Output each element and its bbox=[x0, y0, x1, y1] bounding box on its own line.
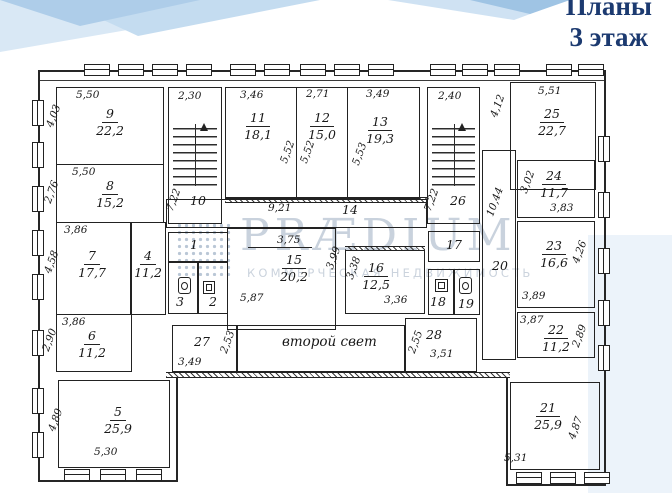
window-mark bbox=[264, 64, 290, 76]
room-16-width-dim: 3,36 bbox=[384, 294, 407, 306]
wall bbox=[176, 377, 178, 481]
sink-icon bbox=[435, 279, 448, 292]
window-mark bbox=[494, 64, 520, 76]
second-light-label: второй свет bbox=[282, 334, 377, 350]
page-title: Планы 3 этаж bbox=[566, 0, 652, 53]
toilet-icon bbox=[178, 277, 191, 294]
room-25-height-dim: 4,12 bbox=[488, 93, 507, 119]
room-13-width-dim: 3,49 bbox=[366, 88, 389, 100]
window-mark bbox=[230, 64, 256, 76]
window-mark bbox=[32, 142, 44, 168]
staircase-10-width-dim: 2,30 bbox=[178, 90, 201, 102]
sink-icon bbox=[203, 281, 215, 294]
room-15-area: 20,2 bbox=[266, 269, 322, 285]
room-24-width-dim: 3,83 bbox=[550, 202, 573, 214]
room-25-label: 2522,7 bbox=[524, 106, 580, 140]
room-4-number: 4 bbox=[140, 248, 156, 265]
room-7-width-dim: 3,86 bbox=[64, 224, 87, 236]
room-22-number: 22 bbox=[544, 322, 568, 339]
window-mark bbox=[32, 274, 44, 300]
measure-line bbox=[248, 247, 312, 248]
room-2-number: 2 bbox=[209, 294, 217, 309]
window-mark bbox=[598, 192, 610, 218]
title-line-1: Планы bbox=[566, 0, 652, 22]
corridor-20-number: 20 bbox=[492, 258, 508, 273]
room-3-number: 3 bbox=[176, 294, 184, 309]
room-7-label: 717,7 bbox=[64, 248, 120, 282]
room-17-number: 17 bbox=[446, 237, 462, 252]
room-6-number: 6 bbox=[84, 328, 100, 345]
room-9-label: 922,2 bbox=[82, 106, 138, 140]
window-mark bbox=[152, 64, 178, 76]
room-25-width-dim: 5,51 bbox=[538, 85, 561, 97]
room-1-number: 1 bbox=[190, 237, 198, 252]
room-16-number: 16 bbox=[364, 260, 388, 277]
stair-arrow-icon bbox=[200, 123, 208, 131]
room-5-width-dim: 5,30 bbox=[94, 446, 117, 458]
window-mark bbox=[100, 469, 126, 481]
room-11-label: 1118,1 bbox=[230, 110, 286, 144]
room-5-label: 525,9 bbox=[90, 404, 146, 438]
window-mark bbox=[64, 469, 90, 481]
room-9-area: 22,2 bbox=[82, 123, 138, 139]
staircase-26-width-dim: 2,40 bbox=[438, 90, 461, 102]
room-15-label: 1520,2 bbox=[266, 252, 322, 286]
window-mark bbox=[462, 64, 488, 76]
room-6-width-dim: 3,86 bbox=[62, 316, 85, 328]
room-21-width-dim: 5,31 bbox=[504, 452, 527, 464]
room-11-area: 18,1 bbox=[230, 127, 286, 143]
title-line-2: 3 этаж bbox=[566, 22, 652, 53]
room-15-number: 15 bbox=[282, 252, 306, 269]
corridor-14-length-dim: 9,21 bbox=[268, 202, 291, 214]
window-mark bbox=[32, 432, 44, 458]
corridor-14-number: 14 bbox=[342, 202, 358, 217]
window-mark bbox=[578, 64, 604, 76]
room-4-label: 411,2 bbox=[120, 248, 176, 282]
room-4-area: 11,2 bbox=[120, 265, 176, 281]
window-mark bbox=[368, 64, 394, 76]
room-16-area: 12,5 bbox=[348, 277, 404, 293]
room-19-number: 19 bbox=[458, 296, 474, 311]
staircase-26-number: 26 bbox=[450, 193, 466, 208]
room-12-width-dim: 2,71 bbox=[306, 88, 329, 100]
window-mark bbox=[516, 472, 542, 484]
window-mark bbox=[584, 472, 610, 484]
window-mark bbox=[598, 136, 610, 162]
window-mark bbox=[136, 469, 162, 481]
window-mark bbox=[186, 64, 212, 76]
window-mark bbox=[334, 64, 360, 76]
room-15-width-dim: 5,87 bbox=[240, 292, 263, 304]
room-15-inner-dim: 3,75 bbox=[277, 234, 300, 246]
room-8-width-dim: 5,50 bbox=[72, 166, 95, 178]
stair-arrow-icon bbox=[458, 123, 466, 131]
room-5-number: 5 bbox=[110, 404, 126, 421]
window-mark bbox=[598, 345, 610, 371]
window-mark bbox=[32, 388, 44, 414]
window-mark bbox=[550, 472, 576, 484]
room-8-number: 8 bbox=[102, 178, 118, 195]
room-5-area: 25,9 bbox=[90, 421, 146, 437]
window-mark bbox=[32, 230, 44, 256]
room-25-number: 25 bbox=[540, 106, 564, 123]
wall bbox=[604, 70, 606, 485]
window-mark bbox=[598, 248, 610, 274]
room-18-number: 18 bbox=[430, 294, 446, 309]
wall bbox=[506, 484, 606, 486]
room-7-number: 7 bbox=[84, 248, 100, 265]
wall bbox=[38, 80, 606, 81]
room-6-label: 611,2 bbox=[64, 328, 120, 362]
room-21-label: 2125,9 bbox=[520, 400, 576, 434]
room-24-number: 24 bbox=[542, 168, 566, 185]
room-12-label: 1215,0 bbox=[294, 110, 350, 144]
room-7-area: 17,7 bbox=[64, 265, 120, 281]
room-28-number: 28 bbox=[426, 327, 442, 342]
stair-treads bbox=[173, 128, 217, 186]
room-12-area: 15,0 bbox=[294, 127, 350, 143]
stair-rail bbox=[195, 124, 196, 186]
staircase-10-number: 10 bbox=[190, 193, 206, 208]
room-8-area: 15,2 bbox=[82, 195, 138, 211]
window-mark bbox=[546, 64, 572, 76]
window-mark bbox=[84, 64, 110, 76]
wall-hatched bbox=[166, 372, 510, 378]
room-27-width-dim: 3,49 bbox=[178, 356, 201, 368]
stair-rail bbox=[454, 124, 455, 186]
room-6-area: 11,2 bbox=[64, 345, 120, 361]
room-23-width-dim: 3,89 bbox=[522, 290, 545, 302]
room-23-number: 23 bbox=[542, 238, 566, 255]
room-12-number: 12 bbox=[310, 110, 334, 127]
room-9-number: 9 bbox=[102, 106, 118, 123]
room-8-label: 815,2 bbox=[82, 178, 138, 212]
room-25-area: 22,7 bbox=[524, 123, 580, 139]
wall bbox=[506, 377, 508, 484]
room-28-width-dim: 3,51 bbox=[430, 348, 453, 360]
window-mark bbox=[430, 64, 456, 76]
window-mark bbox=[118, 64, 144, 76]
room-1-outline bbox=[168, 232, 228, 262]
toilet-icon bbox=[459, 277, 472, 294]
room-9-width-dim: 5,50 bbox=[76, 89, 99, 101]
stair-treads bbox=[432, 128, 475, 186]
room-24-area: 11,7 bbox=[526, 185, 582, 201]
window-mark bbox=[598, 300, 610, 326]
room-22-width-dim: 3,87 bbox=[520, 314, 543, 326]
room-27-number: 27 bbox=[194, 334, 210, 349]
room-21-number: 21 bbox=[536, 400, 560, 417]
room-13-number: 13 bbox=[368, 114, 392, 131]
room-11-width-dim: 3,46 bbox=[240, 89, 263, 101]
window-mark bbox=[32, 100, 44, 126]
room-11-number: 11 bbox=[246, 110, 270, 127]
window-mark bbox=[300, 64, 326, 76]
